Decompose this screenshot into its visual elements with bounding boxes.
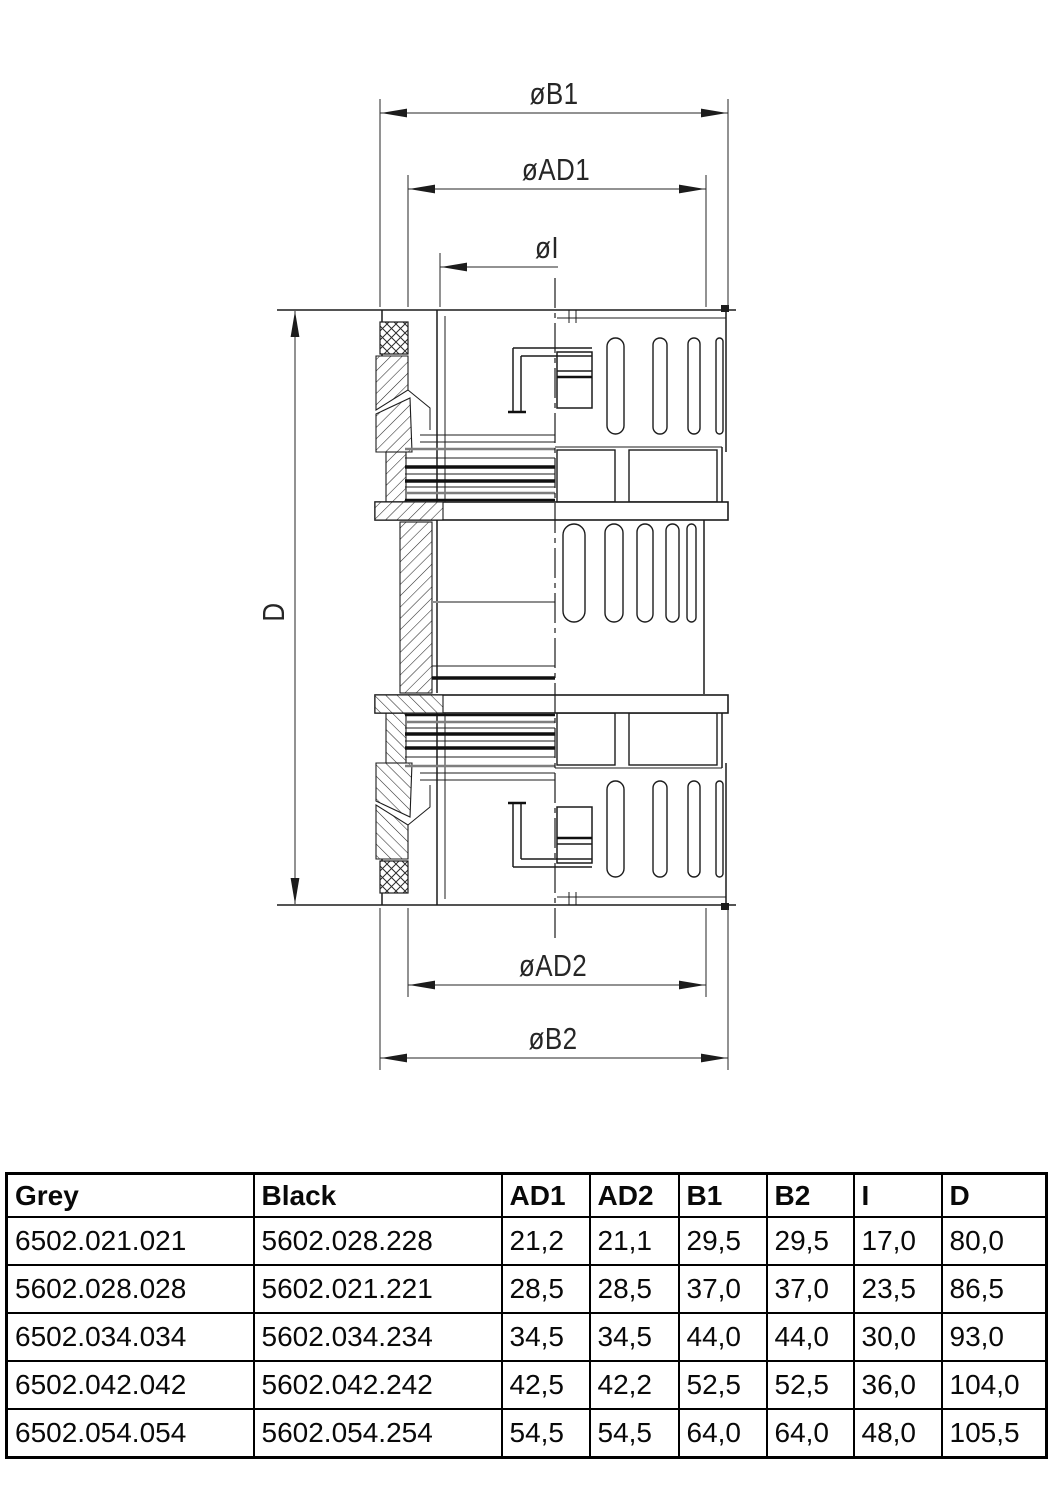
dim-label-ad2: øAD2 <box>519 949 587 984</box>
dim-label-i: øI <box>535 231 559 266</box>
dim-label-b2: øB2 <box>529 1022 578 1057</box>
table-cell: 64,0 <box>679 1409 767 1458</box>
table-cell: 34,5 <box>590 1313 679 1361</box>
table-cell: 48,0 <box>854 1409 942 1458</box>
table-cell: 86,5 <box>942 1265 1047 1313</box>
technical-drawing: øB1 øAD1 øI D øAD2 øB2 <box>0 0 1050 1165</box>
table-cell: 80,0 <box>942 1217 1047 1265</box>
table-cell: 6502.021.021 <box>7 1217 254 1265</box>
table-cell: 44,0 <box>767 1313 854 1361</box>
datasheet-page: øB1 øAD1 øI D øAD2 øB2 <box>0 0 1050 1500</box>
table-cell: 21,2 <box>502 1217 590 1265</box>
table-cell: 5602.028.228 <box>254 1217 502 1265</box>
table-cell: 6502.054.054 <box>7 1409 254 1458</box>
table-cell: 54,5 <box>502 1409 590 1458</box>
table-cell: 5602.034.234 <box>254 1313 502 1361</box>
dimension-d: D <box>257 311 299 904</box>
table-row: 6502.034.0345602.034.23434,534,544,044,0… <box>7 1313 1047 1361</box>
table-cell: 42,5 <box>502 1361 590 1409</box>
spec-table-body: 6502.021.0215602.028.22821,221,129,529,5… <box>7 1217 1047 1458</box>
spec-table: GreyBlackAD1AD2B1B2ID 6502.021.0215602.0… <box>5 1172 1048 1459</box>
table-row: 6502.021.0215602.028.22821,221,129,529,5… <box>7 1217 1047 1265</box>
table-cell: 5602.028.028 <box>7 1265 254 1313</box>
table-cell: 36,0 <box>854 1361 942 1409</box>
spec-table-header-cell: B1 <box>679 1174 767 1218</box>
table-cell: 54,5 <box>590 1409 679 1458</box>
table-cell: 37,0 <box>679 1265 767 1313</box>
spec-table-header-row: GreyBlackAD1AD2B1B2ID <box>7 1174 1047 1218</box>
spec-table-header-cell: AD1 <box>502 1174 590 1218</box>
table-cell: 105,5 <box>942 1409 1047 1458</box>
table-cell: 52,5 <box>679 1361 767 1409</box>
dim-label-ad1: øAD1 <box>522 153 590 188</box>
dimension-ad2: øAD2 <box>408 908 706 997</box>
dimension-b2: øB2 <box>380 908 728 1070</box>
table-cell: 23,5 <box>854 1265 942 1313</box>
table-cell: 28,5 <box>590 1265 679 1313</box>
table-cell: 5602.021.221 <box>254 1265 502 1313</box>
spec-table-header-cell: D <box>942 1174 1047 1218</box>
spec-table-header-cell: B2 <box>767 1174 854 1218</box>
table-cell: 5602.054.254 <box>254 1409 502 1458</box>
coupling-middle-section <box>400 520 704 694</box>
table-cell: 6502.042.042 <box>7 1361 254 1409</box>
table-cell: 52,5 <box>767 1361 854 1409</box>
table-row: 5602.028.0285602.021.22128,528,537,037,0… <box>7 1265 1047 1313</box>
table-cell: 17,0 <box>854 1217 942 1265</box>
table-cell: 42,2 <box>590 1361 679 1409</box>
dim-label-b1: øB1 <box>530 77 579 112</box>
table-cell: 5602.042.242 <box>254 1361 502 1409</box>
spec-table-header-cell: Black <box>254 1174 502 1218</box>
table-cell: 34,5 <box>502 1313 590 1361</box>
spec-table-header-cell: I <box>854 1174 942 1218</box>
dimension-i: øI <box>440 231 559 307</box>
dim-label-d: D <box>257 602 292 621</box>
table-row: 6502.054.0545602.054.25454,554,564,064,0… <box>7 1409 1047 1458</box>
coupling-top-end <box>277 305 736 520</box>
table-cell: 30,0 <box>854 1313 942 1361</box>
table-cell: 37,0 <box>767 1265 854 1313</box>
spec-table-header-cell: Grey <box>7 1174 254 1218</box>
table-row: 6502.042.0425602.042.24242,542,252,552,5… <box>7 1361 1047 1409</box>
table-cell: 93,0 <box>942 1313 1047 1361</box>
table-cell: 64,0 <box>767 1409 854 1458</box>
table-cell: 104,0 <box>942 1361 1047 1409</box>
table-cell: 29,5 <box>679 1217 767 1265</box>
coupling-bottom-end <box>277 695 736 910</box>
table-cell: 6502.034.034 <box>7 1313 254 1361</box>
spec-table-header-cell: AD2 <box>590 1174 679 1218</box>
table-cell: 21,1 <box>590 1217 679 1265</box>
table-cell: 28,5 <box>502 1265 590 1313</box>
table-cell: 29,5 <box>767 1217 854 1265</box>
table-cell: 44,0 <box>679 1313 767 1361</box>
